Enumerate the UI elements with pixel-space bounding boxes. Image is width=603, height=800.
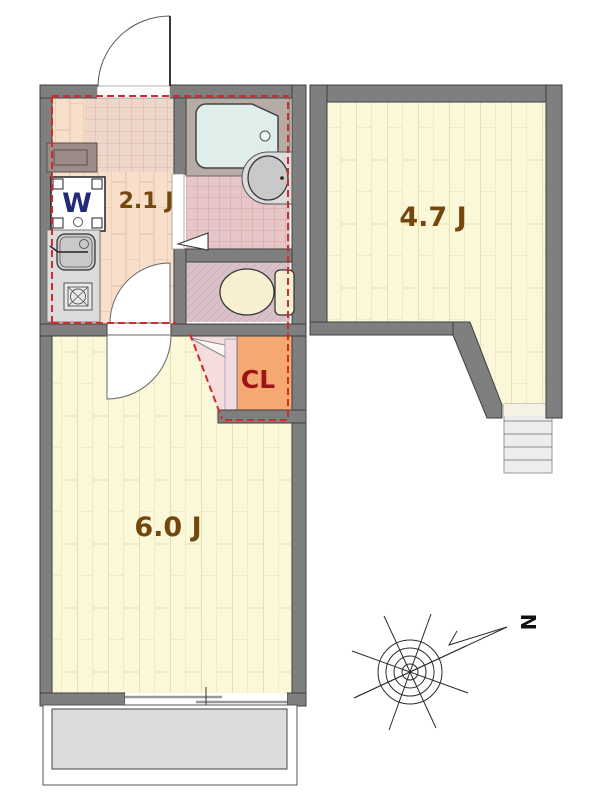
wall-kitchen-room-right [171,324,306,336]
toilet-tank [275,270,294,315]
compass-rose: N [352,614,540,730]
wall-bottom-left [40,693,125,706]
wall-kitchen-room-left [40,324,107,336]
washbasin [242,152,292,204]
closet-door-panel [225,339,237,410]
stairs [504,404,552,473]
washing-machine: W [51,177,105,231]
wall-washroom-toilet [186,249,292,262]
kitchen-label: 2.1 J [119,189,174,214]
wall-bath-upper [174,98,186,174]
entrance-door-arc [98,16,170,87]
shoe-cabinet [47,143,97,172]
wall-closet-bottom [218,410,306,423]
floorplan-svg: W [0,0,603,800]
main-room-label: 6.0 J [134,512,201,543]
wall2-right [546,85,562,418]
wall2-left [310,85,327,335]
floorplan-canvas: W [0,0,603,800]
north-arrow-shaft [356,627,507,697]
wall2-top [310,85,562,102]
wall-left [40,85,52,706]
entrance-door [97,16,170,98]
closet-label: CL [241,365,275,394]
wall2-bottom [310,322,462,335]
drain-icon [260,131,270,141]
entrance-tile-floor [85,98,174,172]
north-label: N [516,614,540,631]
second-room-label: 4.7 J [399,202,466,233]
wall-right [292,85,306,706]
kitchen-counter [47,230,100,322]
toilet [220,269,294,315]
balcony [43,705,297,785]
wall-bottom-right [287,693,306,706]
washing-machine-label: W [62,188,92,219]
washroom-door-leaf [172,174,184,249]
toilet-bowl [220,269,274,315]
north-arrow-head [449,627,507,645]
stove-icon [64,283,92,310]
balcony-deck [52,709,287,769]
second-room-floor [327,102,546,408]
